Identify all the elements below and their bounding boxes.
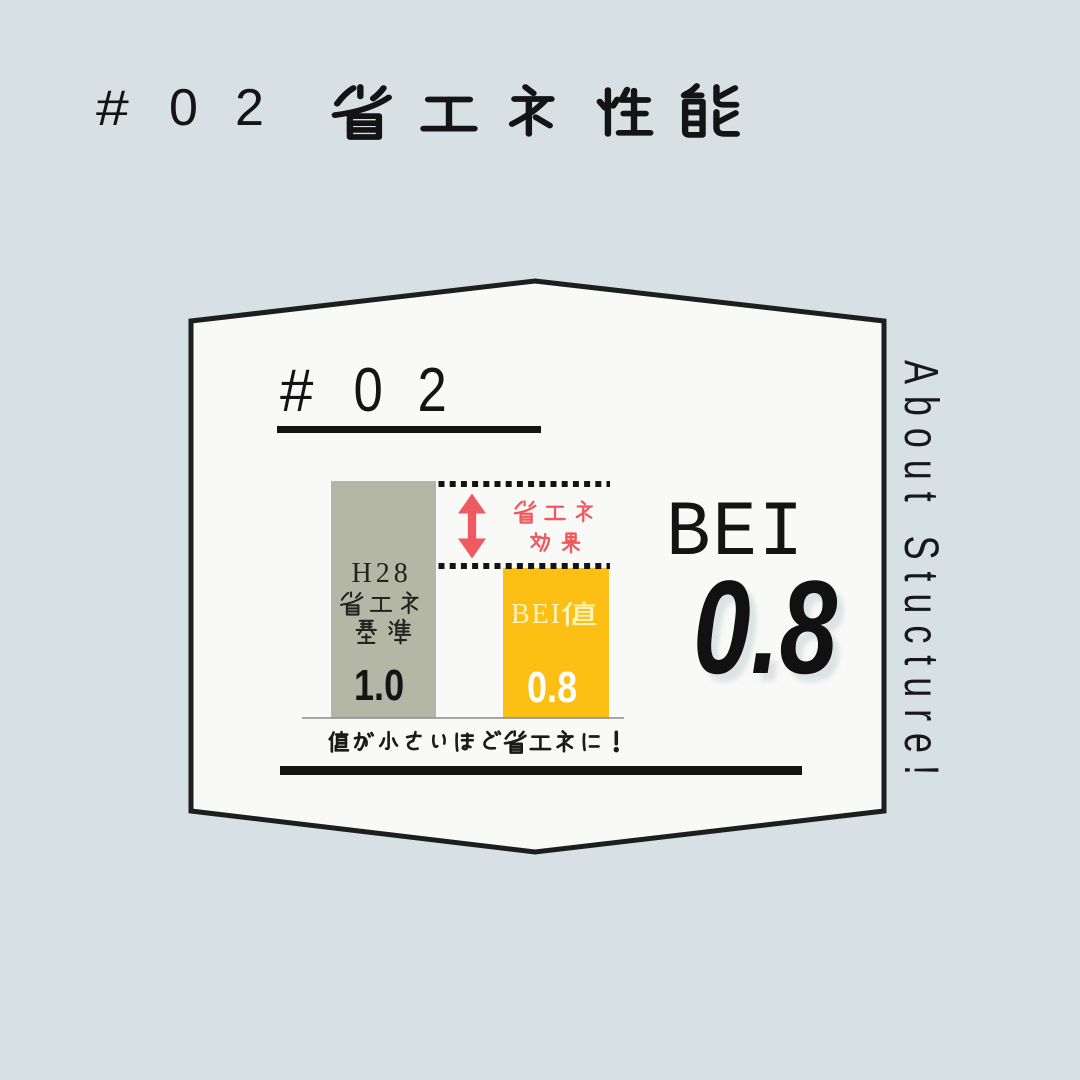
svg-text:2: 2 — [418, 356, 447, 425]
svg-text:#: # — [280, 357, 314, 424]
svg-text:1.0: 1.0 — [354, 661, 404, 710]
svg-text:About Stucture!: About Stucture! — [895, 360, 948, 787]
svg-text:0.8: 0.8 — [693, 554, 838, 702]
svg-text:#: # — [96, 79, 129, 136]
svg-text:2: 2 — [235, 79, 264, 137]
svg-text:BEI: BEI — [511, 599, 562, 630]
svg-text:H28: H28 — [352, 558, 412, 589]
svg-text:0.8: 0.8 — [527, 663, 577, 712]
svg-text:0: 0 — [169, 79, 198, 137]
svg-text:0: 0 — [354, 356, 383, 425]
